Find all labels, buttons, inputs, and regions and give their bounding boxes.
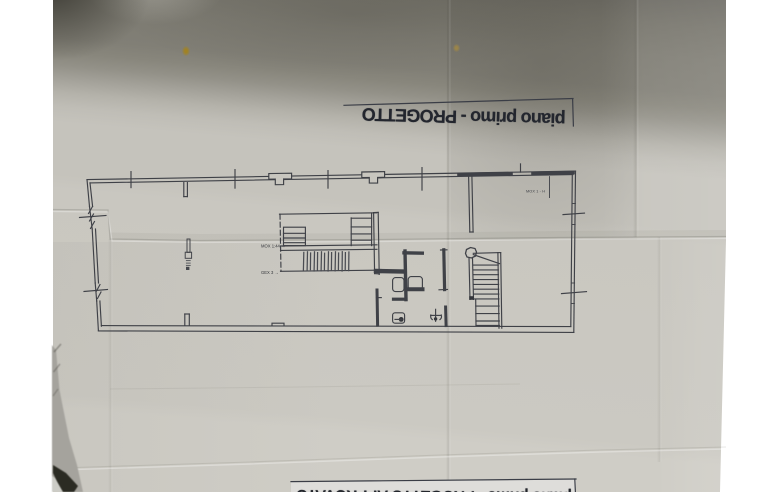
svg-text:MOX 1 - H: MOX 1 - H [526, 189, 545, 193]
svg-text:GEX 3 →: GEX 3 → [261, 270, 279, 275]
svg-text:MOX 1:44 →: MOX 1:44 → [261, 244, 285, 249]
